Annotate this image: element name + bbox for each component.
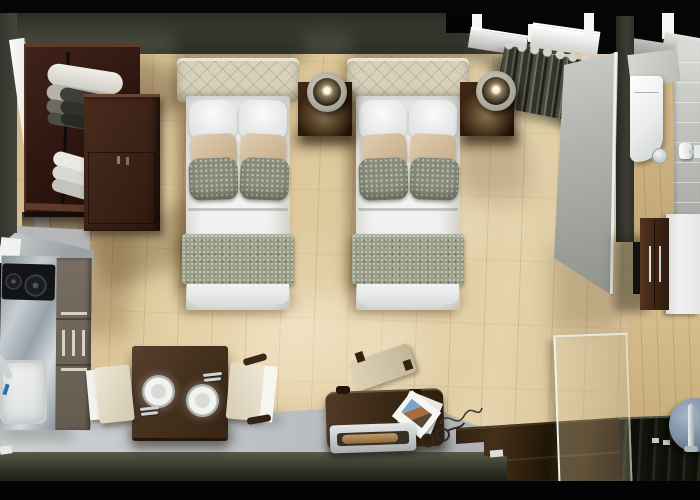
- vanity-handle: [659, 246, 661, 282]
- bed-foot: [187, 284, 289, 304]
- duvet-fold: [358, 208, 458, 211]
- gray-damask-pillow: [409, 157, 459, 201]
- cup: [652, 148, 668, 164]
- frame-bottom: [0, 481, 700, 500]
- platform-notch: [490, 449, 504, 457]
- plate: [142, 375, 175, 408]
- cabinet-divider: [56, 318, 91, 320]
- gray-damask-pillow: [239, 157, 289, 201]
- bed-2: [356, 58, 460, 310]
- burner: [24, 274, 47, 297]
- toilet-paper-mount: [694, 145, 700, 158]
- cabinet-handle: [72, 330, 75, 356]
- basin-faucet: [688, 404, 694, 450]
- shower-glass-panel: [553, 333, 632, 485]
- bench-hinge: [336, 386, 350, 394]
- duvet-fold: [188, 208, 288, 211]
- cabinet-handle: [82, 330, 85, 356]
- bed-1: [186, 58, 290, 310]
- chair-left: [94, 364, 135, 423]
- window-frame: [584, 13, 594, 37]
- plate: [186, 384, 219, 417]
- cabinet-divider: [56, 364, 91, 366]
- dresser-handle: [126, 157, 129, 165]
- bed-runner: [352, 234, 464, 284]
- cabinet-handle: [62, 330, 65, 356]
- burner: [5, 273, 22, 290]
- bed-foot: [357, 284, 459, 304]
- bed-runner: [182, 234, 294, 284]
- vanity-cabinet: [640, 218, 669, 310]
- gray-damask-pillow: [358, 157, 408, 201]
- kickplate: [0, 445, 12, 455]
- vanity-counter: [666, 214, 700, 314]
- lamp-1: [307, 72, 347, 112]
- drain-fitting: [652, 438, 659, 443]
- cabinet-handle: [61, 312, 87, 315]
- room-render: [0, 0, 700, 500]
- dresser-handle: [117, 156, 120, 164]
- vanity-handle: [649, 246, 651, 282]
- basin-faucet-base: [684, 446, 698, 452]
- dresser-doors: [88, 152, 156, 224]
- cabinet-handle: [61, 368, 87, 371]
- gray-damask-pillow: [188, 157, 238, 201]
- drain-fitting: [663, 440, 670, 445]
- lamp-2: [476, 71, 516, 111]
- cable: [438, 404, 484, 430]
